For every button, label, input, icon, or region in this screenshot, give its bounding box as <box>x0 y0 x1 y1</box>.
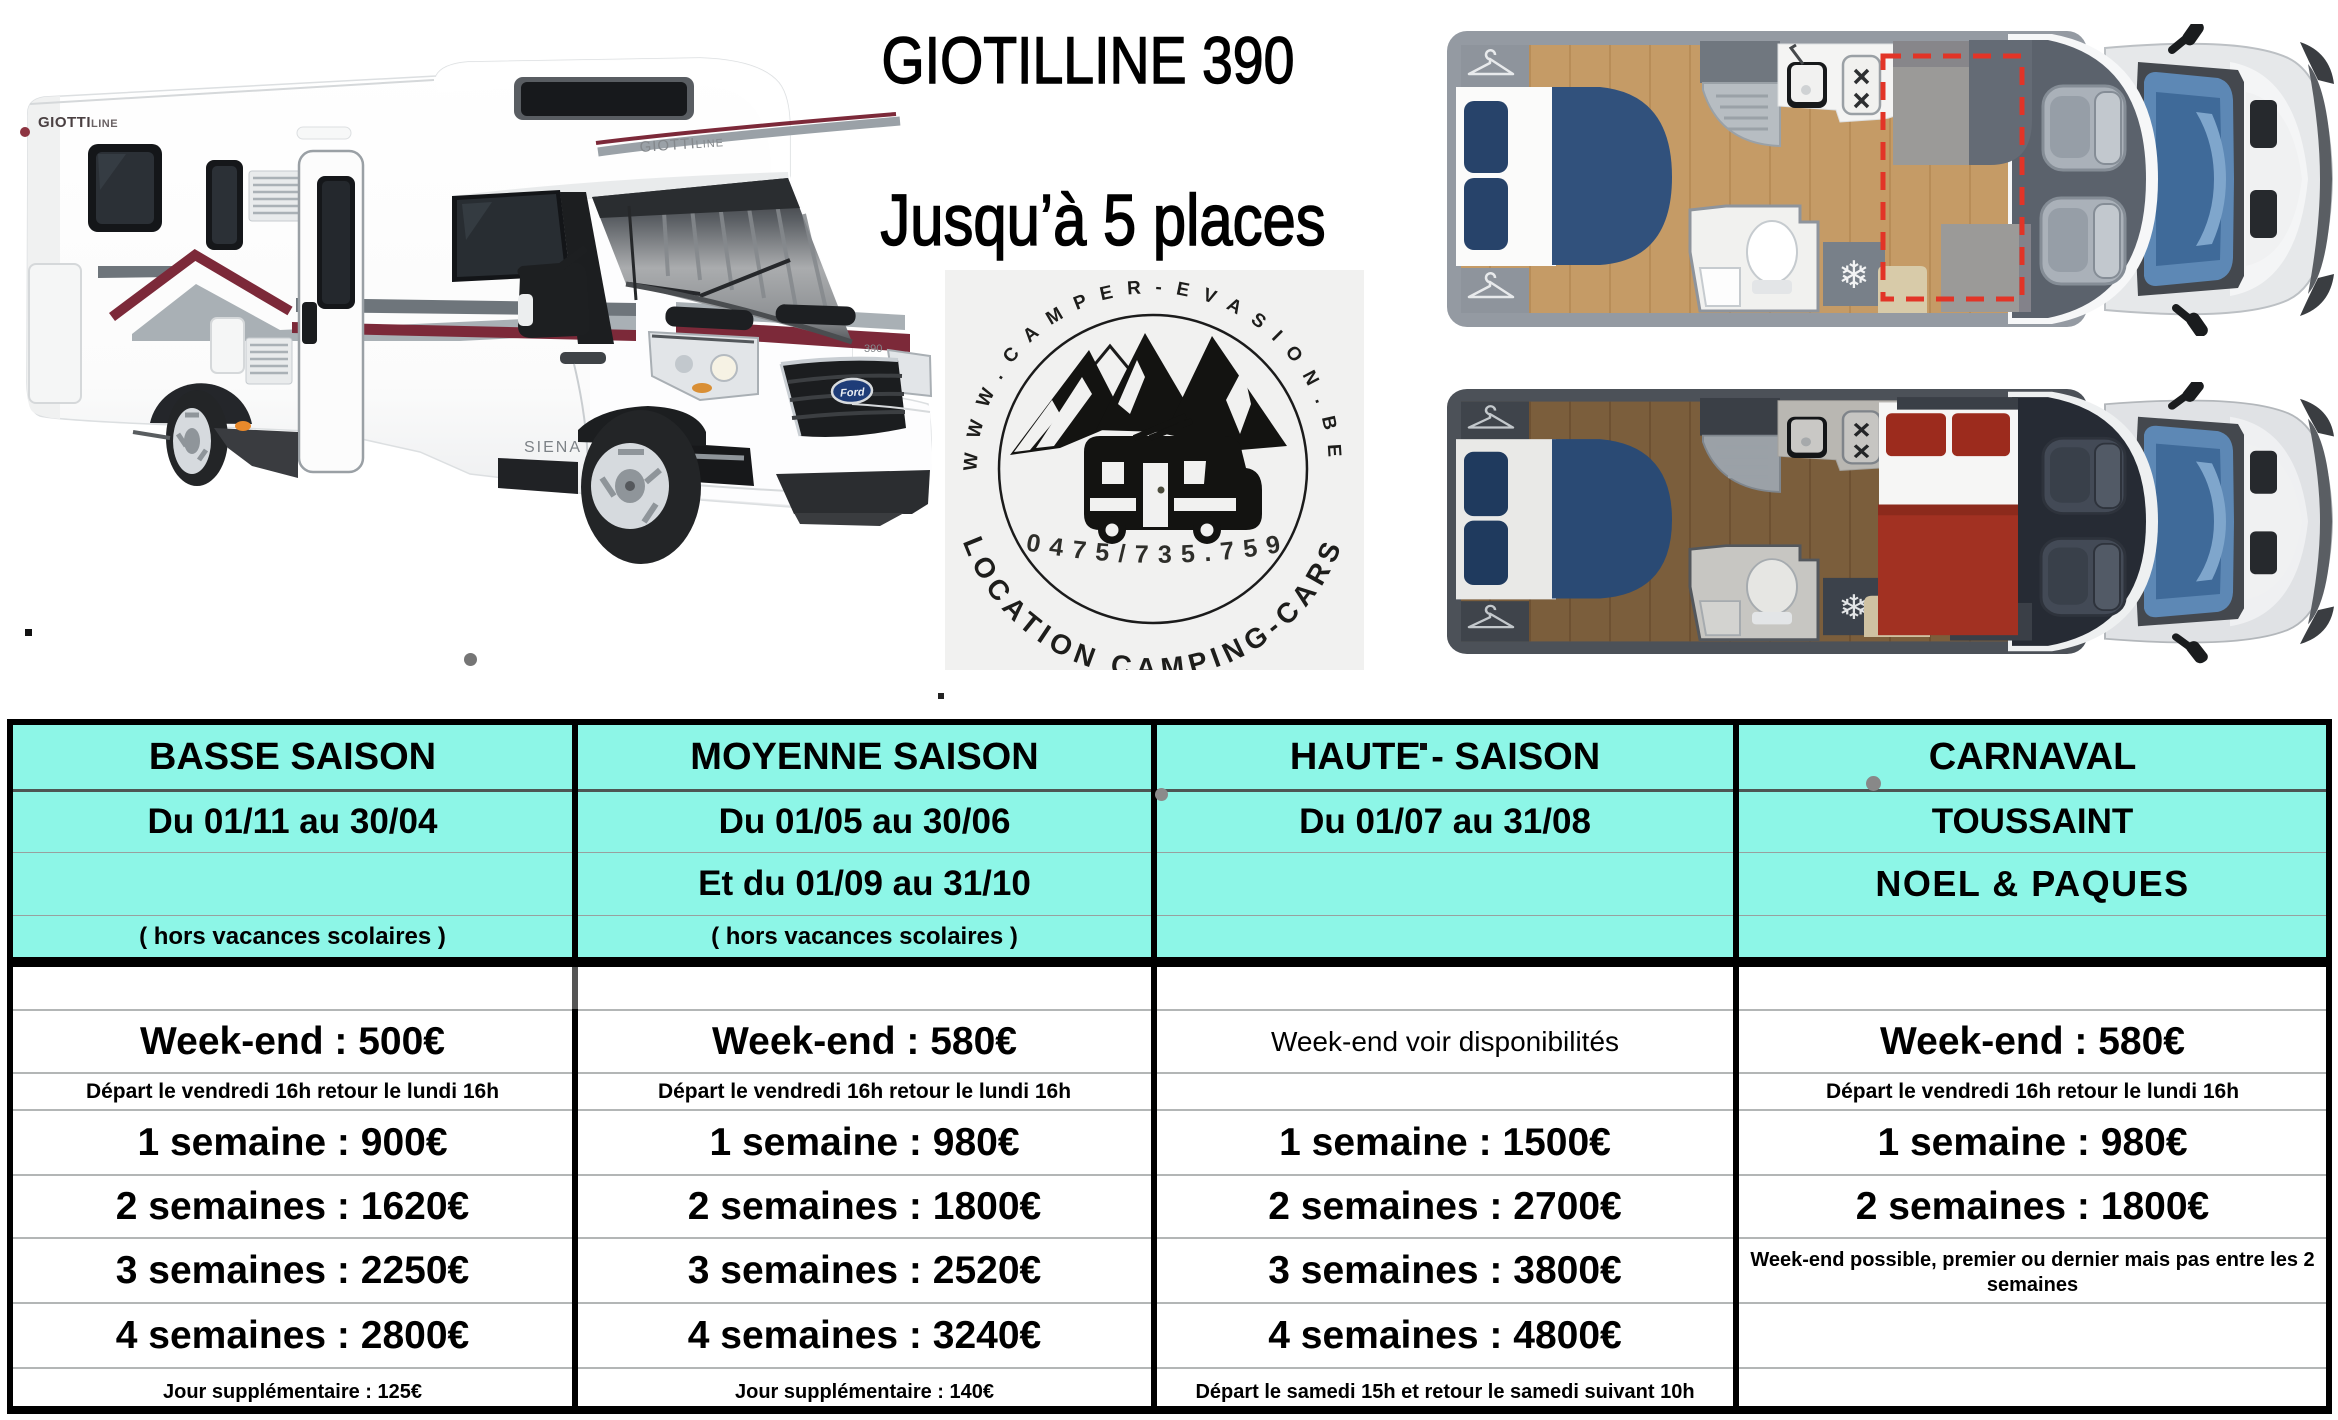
svg-text:390: 390 <box>864 343 882 355</box>
svg-text:Ford: Ford <box>840 386 865 399</box>
svg-text:SIENA: SIENA <box>524 439 582 456</box>
svg-text:❄: ❄ <box>1838 255 1870 297</box>
